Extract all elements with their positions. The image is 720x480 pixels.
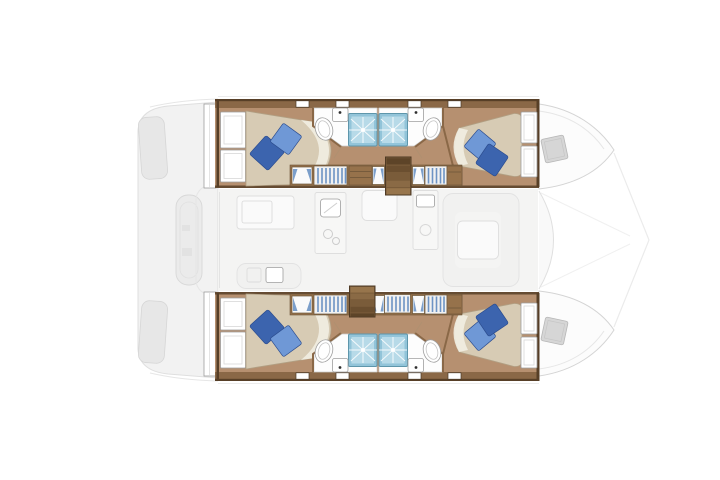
aft-bench <box>237 264 301 289</box>
wardrobe <box>385 295 411 314</box>
galley-sink <box>321 199 341 217</box>
starboard-bow <box>539 291 614 376</box>
galley-block <box>315 193 346 254</box>
port-bow <box>539 104 614 189</box>
tender-platform <box>176 195 202 285</box>
starboard-counter <box>413 191 438 250</box>
floorplan-page <box>0 0 720 480</box>
forward-lounge <box>443 194 519 287</box>
saloon <box>218 189 538 291</box>
starboard-companionway-stairs <box>350 286 376 317</box>
port-companionway-stairs <box>386 157 412 195</box>
engine-hatch <box>138 116 168 180</box>
saloon-table <box>458 221 499 259</box>
windshield-line <box>539 191 554 289</box>
port-hull <box>204 99 540 188</box>
catamaran-floorplan <box>0 0 720 480</box>
engine-hatch <box>138 300 168 364</box>
